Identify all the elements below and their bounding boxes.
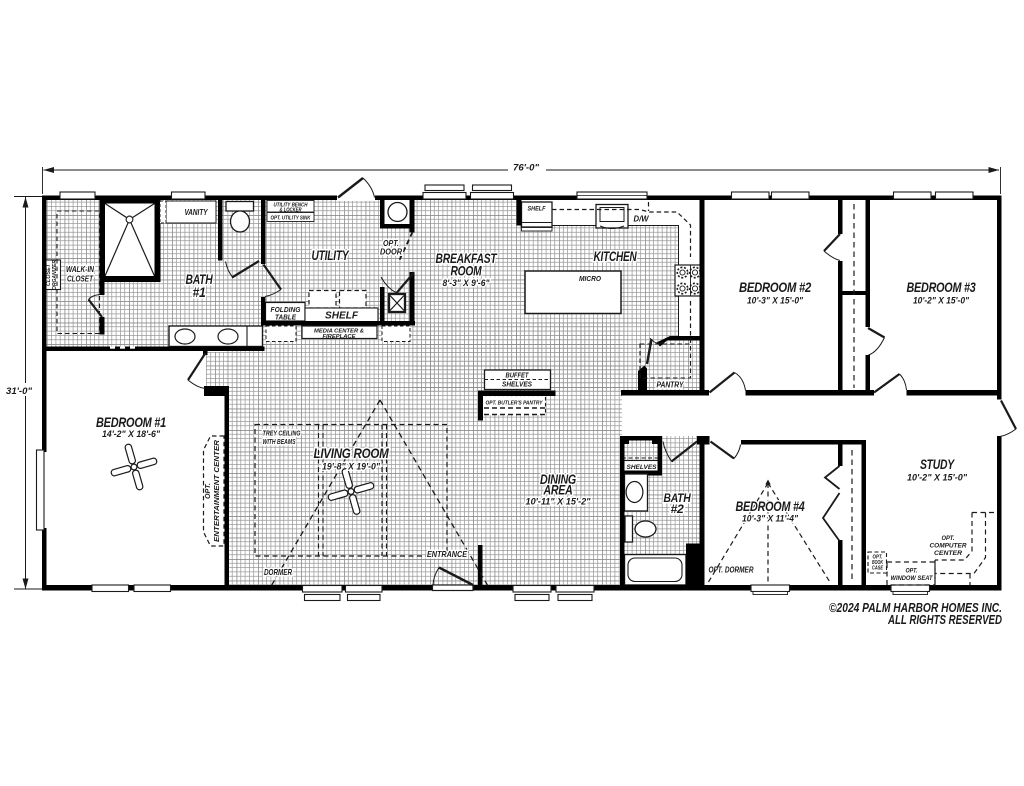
svg-text:VANITY: VANITY — [185, 208, 209, 217]
svg-text:19'-8" X 19'-0": 19'-8" X 19'-0" — [322, 462, 380, 473]
svg-text:BEDROOM #4: BEDROOM #4 — [736, 498, 805, 514]
svg-text:10'-11" X 15'-2": 10'-11" X 15'-2" — [526, 497, 591, 508]
svg-text:SHELVES: SHELVES — [502, 382, 532, 389]
svg-text:76'-0": 76'-0" — [513, 163, 539, 174]
svg-text:ROOM: ROOM — [451, 263, 482, 279]
svg-text:SHELF: SHELF — [325, 310, 359, 322]
svg-text:31'-0": 31'-0" — [6, 386, 32, 397]
svg-text:BEDROOM #2: BEDROOM #2 — [739, 279, 811, 295]
svg-text:LIVING ROOM: LIVING ROOM — [314, 445, 390, 461]
svg-text:DOOR: DOOR — [380, 248, 402, 257]
svg-text:UTILITY: UTILITY — [312, 248, 351, 263]
svg-text:10'-2" X 15'-0": 10'-2" X 15'-0" — [913, 296, 969, 307]
svg-text:10'-2" X 15'-0": 10'-2" X 15'-0" — [907, 473, 967, 484]
svg-text:CASE: CASE — [872, 566, 884, 572]
svg-text:10'-3" X 15'-0": 10'-3" X 15'-0" — [747, 296, 803, 307]
svg-text:OPT.: OPT. — [942, 535, 955, 542]
svg-text:COMPUTER: COMPUTER — [930, 543, 967, 550]
svg-text:DORMER: DORMER — [264, 567, 293, 577]
svg-text:& LOCKER: & LOCKER — [280, 208, 302, 214]
svg-text:OPT. UTILITY SINK: OPT. UTILITY SINK — [271, 216, 312, 222]
svg-text:KITCHEN: KITCHEN — [594, 248, 638, 264]
svg-text:OPT.: OPT. — [906, 568, 918, 575]
svg-text:OPT. DORMER: OPT. DORMER — [709, 566, 754, 575]
svg-text:BEDROOM #1: BEDROOM #1 — [96, 414, 166, 430]
svg-text:FIREPLACE: FIREPLACE — [323, 334, 357, 340]
svg-text:#2: #2 — [671, 502, 685, 516]
svg-text:ENTRANCE: ENTRANCE — [427, 549, 467, 559]
svg-text:ORGANIZER: ORGANIZER — [52, 260, 58, 290]
svg-text:AREA: AREA — [543, 482, 573, 498]
svg-text:WALK-IN: WALK-IN — [66, 265, 94, 274]
svg-text:STUDY: STUDY — [920, 456, 955, 472]
svg-text:CLOSET: CLOSET — [67, 275, 94, 284]
svg-text:PANTRY: PANTRY — [657, 381, 685, 390]
svg-text:TREY CEILING: TREY CEILING — [263, 431, 301, 438]
svg-text:WITH BEAMS: WITH BEAMS — [263, 439, 296, 446]
svg-text:OPT. BUTLER'S PANTRY: OPT. BUTLER'S PANTRY — [486, 401, 544, 407]
svg-text:8'-3" X 9'-6": 8'-3" X 9'-6" — [443, 278, 490, 289]
svg-text:SHELF: SHELF — [528, 206, 547, 213]
svg-text:D/W: D/W — [634, 215, 650, 224]
svg-text:CENTER: CENTER — [934, 550, 962, 557]
svg-text:WINDOW SEAT: WINDOW SEAT — [891, 575, 934, 582]
svg-text:TABLE: TABLE — [275, 315, 296, 322]
svg-text:BUFFET: BUFFET — [506, 373, 530, 380]
svg-text:14'-2" X 18'-6": 14'-2" X 18'-6" — [102, 429, 160, 440]
svg-text:10'-3" X 11'-4": 10'-3" X 11'-4" — [742, 514, 798, 525]
svg-text:BEDROOM #3: BEDROOM #3 — [907, 279, 976, 295]
svg-text:ALL RIGHTS RESERVED: ALL RIGHTS RESERVED — [887, 612, 1002, 627]
svg-text:#1: #1 — [193, 284, 206, 300]
svg-text:OPT.: OPT. — [205, 483, 212, 499]
svg-text:SHELVES: SHELVES — [627, 464, 658, 471]
svg-text:MICRO: MICRO — [579, 274, 601, 283]
svg-text:FOLDING: FOLDING — [271, 307, 302, 314]
svg-text:ENTERTAINMENT CENTER: ENTERTAINMENT CENTER — [214, 440, 221, 542]
